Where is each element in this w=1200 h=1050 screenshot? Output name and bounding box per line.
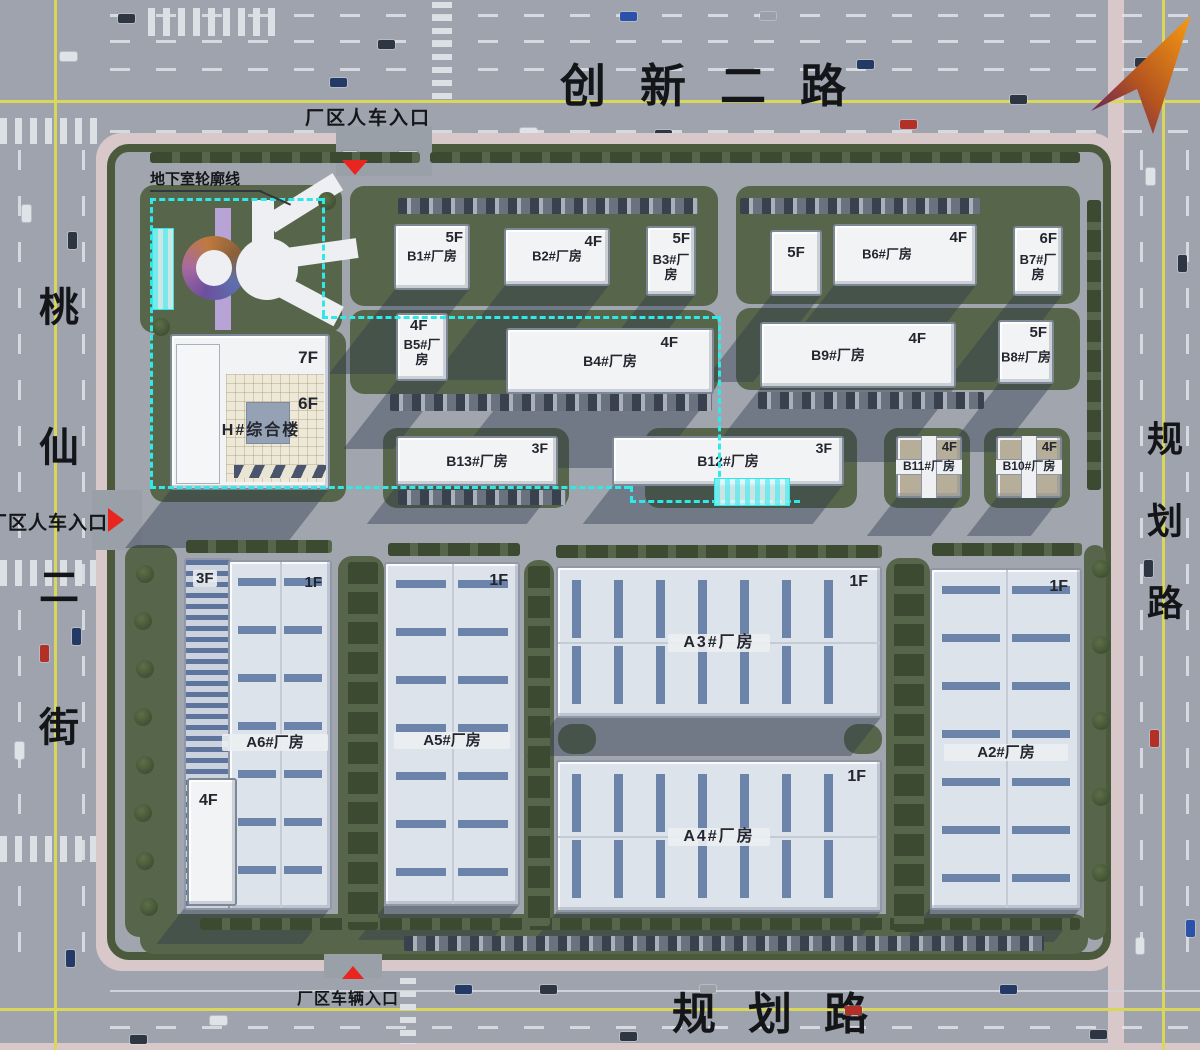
floor-label: 1F — [1049, 578, 1068, 596]
hedge-row — [932, 543, 1082, 556]
car — [1178, 255, 1187, 272]
car — [1090, 1030, 1107, 1039]
building-b7: 6F B7#厂房 — [1013, 226, 1063, 296]
hedge-row — [200, 918, 1080, 930]
building-a5: 1F A5#厂房 — [384, 562, 520, 906]
entrance-label-top: 厂区人车入口 — [305, 103, 431, 130]
entrance-marker-left — [108, 508, 124, 532]
car — [22, 205, 31, 222]
roof-skylights — [572, 646, 860, 704]
building-b3: 5F B3#厂房 — [646, 226, 696, 296]
car — [1000, 985, 1017, 994]
car — [1146, 168, 1155, 185]
tree — [134, 804, 152, 822]
car — [378, 40, 395, 49]
building-b5: 4F B5#厂房 — [396, 313, 448, 381]
building-b11: 4F B11#厂房 — [896, 436, 962, 498]
parking-row — [398, 198, 698, 214]
building-label: B8#厂房 — [1000, 351, 1052, 366]
car — [1010, 95, 1027, 104]
building-b4: 4F B4#厂房 — [506, 328, 714, 394]
floor-label: 4F — [949, 229, 967, 246]
building-label: H#综合楼 — [202, 422, 320, 440]
floor-label: 1F — [304, 574, 322, 591]
tree — [136, 852, 154, 870]
center-line — [0, 1008, 1200, 1011]
building-b6: 4F B6#厂房 — [833, 224, 977, 286]
roof-skylights — [942, 586, 1000, 892]
basement-ramp — [714, 478, 790, 506]
building-a3: 1F A3#厂房 — [556, 566, 882, 718]
building-label: B11#厂房 — [898, 460, 960, 474]
car — [72, 628, 81, 645]
building-label: A3#厂房 — [668, 634, 770, 652]
hedge-row — [894, 564, 924, 932]
crosswalk — [432, 2, 452, 104]
building-label: B9#厂房 — [762, 347, 914, 363]
building-label: A4#厂房 — [668, 828, 770, 846]
tree — [134, 708, 152, 726]
tree — [1092, 788, 1110, 806]
road-label-top: 创新二路 — [560, 50, 880, 116]
road-bottom — [0, 975, 1200, 1050]
car — [455, 985, 472, 994]
entrance-marker-bottom — [342, 966, 364, 979]
car — [1144, 560, 1153, 577]
hedge-row — [388, 543, 520, 556]
fountain-center — [196, 250, 232, 286]
car — [900, 120, 917, 129]
basement-outline-segment — [322, 316, 718, 319]
sidewalk-strip-bottom — [0, 1043, 1200, 1050]
car — [210, 1016, 227, 1025]
edge-line — [110, 990, 1200, 992]
tree — [1092, 560, 1110, 578]
building-label: B7#厂房 — [1015, 253, 1061, 283]
car — [700, 985, 716, 993]
lawn-patch — [125, 545, 177, 937]
parking-row — [758, 392, 984, 409]
road-label-left: 桃仙二街 — [26, 286, 84, 846]
parking-row — [398, 490, 566, 505]
annotation-underline — [150, 190, 262, 192]
north-arrow-icon — [1085, 12, 1195, 137]
car — [1186, 920, 1195, 937]
building-b2: 4F B2#厂房 — [504, 228, 610, 286]
tree — [134, 612, 152, 630]
car — [1136, 938, 1144, 954]
h-roof-vents — [234, 465, 326, 478]
tree — [152, 318, 170, 336]
floor-label: 4F — [584, 233, 602, 250]
car — [68, 232, 77, 249]
floor-label: 5F — [672, 230, 690, 247]
tree — [318, 192, 336, 210]
entrance-label-bottom: 厂区车辆入口 — [297, 985, 399, 1009]
building-b10: 4F B10#厂房 — [996, 436, 1062, 498]
floor-label: 5F — [445, 229, 463, 246]
site-plan: 创新二路 桃仙二街 规划路 规划路 5F B1#厂房 4F B2#厂房 5F B… — [0, 0, 1200, 1050]
roof-skylights — [1012, 586, 1070, 892]
hedge-row — [1087, 200, 1101, 490]
floor-label: 4F — [199, 792, 218, 810]
hedge-row — [430, 152, 1080, 163]
car — [1150, 730, 1159, 747]
floor-label: 4F — [942, 439, 957, 454]
basement-skylight — [152, 228, 174, 310]
basement-outline-segment — [718, 316, 721, 486]
car — [620, 12, 637, 21]
floor-label: 1F — [847, 768, 866, 786]
building-b9: 4F B9#厂房 — [760, 322, 956, 388]
building-label: B12#厂房 — [614, 453, 842, 469]
entrance-label-left: 厂区人车入口 — [0, 508, 108, 535]
roof-skylights — [572, 840, 860, 898]
road-label-right: 规划路 — [1136, 420, 1188, 666]
floor-label: 6F — [1039, 230, 1057, 247]
crosswalk — [400, 978, 416, 1044]
floor-label: 5F — [1029, 324, 1047, 341]
car — [620, 1032, 637, 1041]
car — [760, 12, 776, 20]
tree — [136, 565, 154, 583]
hedge-row — [186, 540, 332, 553]
basement-outline-label: 地下室轮廓线 — [150, 168, 240, 189]
car — [845, 1006, 862, 1015]
building-a6-tower: 4F — [187, 778, 237, 906]
crosswalk — [148, 8, 280, 36]
car — [857, 60, 874, 69]
roof-skylights — [572, 774, 860, 832]
car — [130, 1035, 147, 1044]
floor-label: 7F — [298, 348, 318, 368]
building-label: B3#厂房 — [648, 253, 694, 283]
tree — [136, 756, 154, 774]
building-label: B5#厂房 — [398, 338, 446, 368]
basement-outline-segment — [150, 198, 153, 486]
building-label: B2#厂房 — [506, 250, 608, 265]
building-b8: 5F B8#厂房 — [998, 320, 1054, 384]
car — [60, 52, 77, 61]
car — [66, 950, 75, 967]
lane-line — [110, 40, 1200, 43]
floor-label: 3F — [193, 570, 217, 587]
building-shadow — [527, 716, 882, 756]
roof-ridge — [1006, 570, 1008, 908]
basement-outline-segment — [150, 486, 630, 489]
building-label: A2#厂房 — [944, 744, 1068, 761]
tree — [1092, 864, 1110, 882]
car — [330, 78, 347, 87]
tree — [140, 898, 158, 916]
car — [540, 985, 557, 994]
floor-label: 6F — [298, 394, 318, 414]
plaza-hub — [236, 238, 298, 300]
hedge-row — [348, 562, 378, 930]
floor-label: 4F — [908, 330, 926, 347]
floor-label: 4F — [660, 334, 678, 351]
car — [40, 645, 49, 662]
building-label: B6#厂房 — [835, 248, 939, 263]
building-label: B4#厂房 — [508, 353, 712, 369]
hedge-row — [528, 566, 550, 926]
building-label: A6#厂房 — [222, 734, 328, 751]
building-label: A5#厂房 — [394, 732, 510, 749]
floor-label: 1F — [489, 572, 508, 590]
basement-outline-segment — [322, 198, 325, 316]
floor-label: 1F — [849, 573, 868, 591]
building-b13: 3F B13#厂房 — [396, 436, 558, 486]
parking-row — [740, 198, 980, 214]
building-label: B10#厂房 — [998, 460, 1060, 474]
building-a6: 1F A6#厂房 — [228, 560, 332, 910]
roof-skylights — [572, 580, 860, 638]
building-label: B1#厂房 — [396, 250, 468, 265]
hedge-row — [556, 545, 882, 558]
floor-label: 4F — [1042, 439, 1057, 454]
building-b1: 5F B1#厂房 — [394, 224, 470, 290]
building-5f-annex: 5F — [770, 230, 822, 296]
floor-label: 5F — [772, 244, 820, 261]
parking-row — [404, 936, 1044, 951]
car — [118, 14, 135, 23]
building-label: B13#厂房 — [398, 453, 556, 469]
tree — [136, 660, 154, 678]
entrance-marker-top — [342, 160, 368, 175]
tree — [1092, 712, 1110, 730]
building-h: 7F 6F H#综合楼 — [170, 334, 330, 490]
building-a4: 1F A4#厂房 — [556, 760, 882, 912]
parking-row — [390, 394, 712, 411]
car — [15, 742, 24, 759]
tree — [1092, 636, 1110, 654]
basement-outline-segment — [150, 198, 322, 201]
hedge-row — [150, 152, 420, 163]
h-tower — [176, 344, 220, 484]
lane-line — [110, 1026, 1200, 1029]
building-a2: 1F A2#厂房 — [930, 568, 1082, 910]
floor-label: 4F — [410, 317, 428, 334]
crosswalk — [0, 118, 100, 144]
